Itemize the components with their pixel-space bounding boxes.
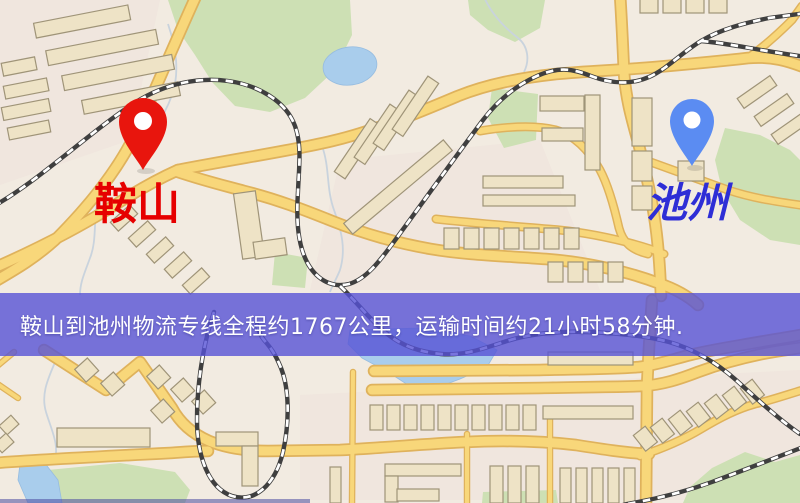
origin-pin-shadow <box>137 168 155 174</box>
map-screenshot: 鞍山 池州 鞍山到池州物流专线全程约1767公里，运输时间约21小时58分钟. <box>0 0 800 503</box>
route-info-banner: 鞍山到池州物流专线全程约1767公里，运输时间约21小时58分钟. <box>0 293 800 356</box>
destination-pin-hole <box>684 112 701 129</box>
bottom-edge-strip <box>0 499 310 503</box>
origin-label: 鞍山 <box>94 180 180 230</box>
origin-pin-hole <box>134 112 152 130</box>
destination-label: 池州 <box>646 179 733 227</box>
map-canvas[interactable]: 鞍山 池州 <box>0 0 800 503</box>
route-info-text: 鞍山到池州物流专线全程约1767公里，运输时间约21小时58分钟. <box>20 309 683 341</box>
destination-pin-shadow <box>687 165 703 171</box>
